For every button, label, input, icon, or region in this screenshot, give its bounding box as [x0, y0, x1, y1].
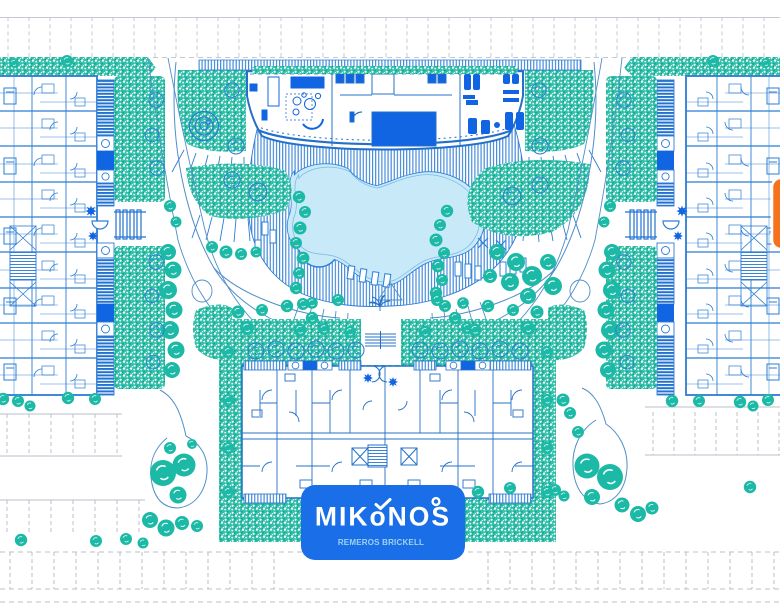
svg-text:REMEROS BRICKELL: REMEROS BRICKELL — [338, 538, 424, 547]
